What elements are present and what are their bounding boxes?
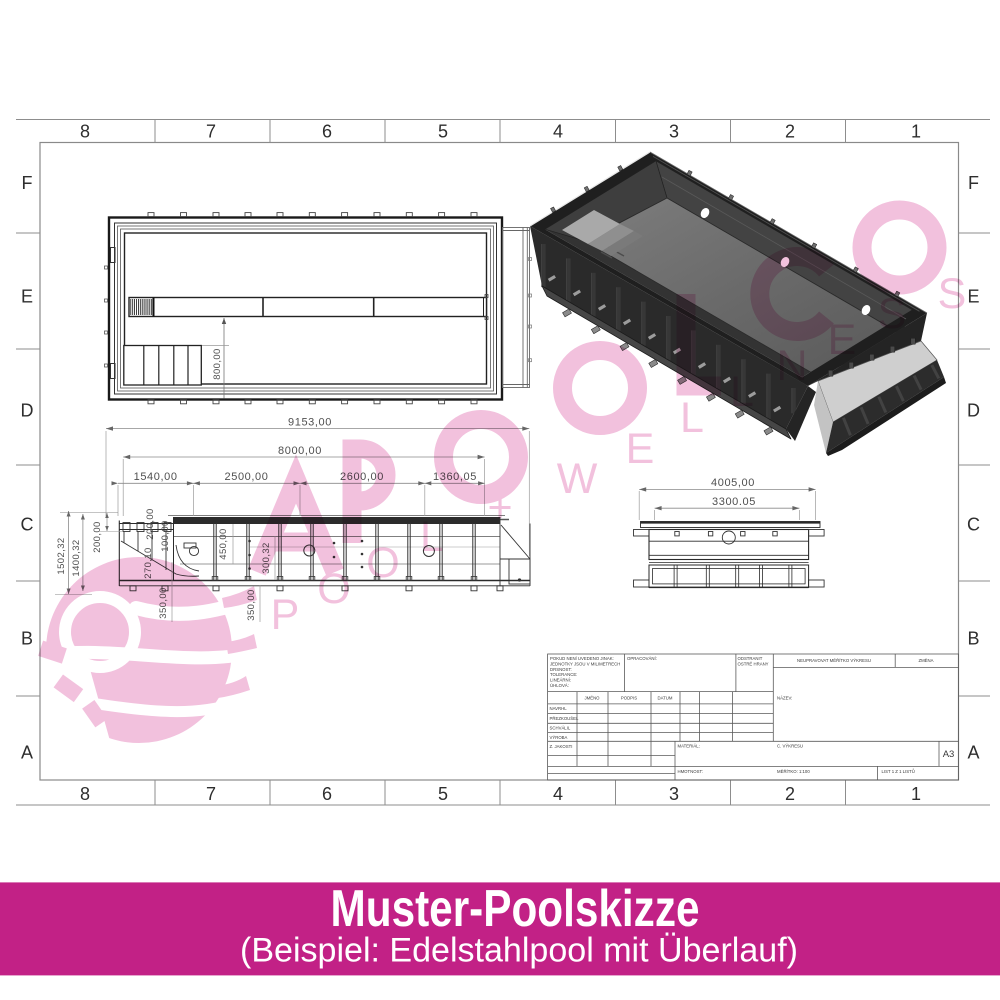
svg-text:7: 7 <box>206 122 216 142</box>
svg-text:PŘEZKOUŠEL: PŘEZKOUŠEL <box>550 716 580 721</box>
svg-text:+: + <box>487 484 512 532</box>
svg-text:C. VÝKRESU: C. VÝKRESU <box>777 744 803 749</box>
svg-text:B: B <box>21 629 33 649</box>
svg-text:SCHVÁLIL: SCHVÁLIL <box>550 726 571 731</box>
svg-text:1: 1 <box>911 784 921 804</box>
svg-text:A3: A3 <box>943 749 955 760</box>
svg-text:1400,32: 1400,32 <box>71 539 82 576</box>
svg-text:E: E <box>21 287 33 307</box>
svg-text:A: A <box>967 743 979 763</box>
svg-text:F: F <box>22 173 33 193</box>
svg-text:ZMĚNA: ZMĚNA <box>918 658 933 663</box>
svg-text:N: N <box>776 342 807 390</box>
svg-text:2: 2 <box>785 784 795 804</box>
svg-text:C: C <box>967 515 980 535</box>
svg-text:ODSTRANIT: ODSTRANIT <box>738 656 763 661</box>
svg-text:S: S <box>938 270 967 318</box>
svg-text:1502,32: 1502,32 <box>56 537 67 574</box>
svg-text:1540,00: 1540,00 <box>134 471 178 483</box>
svg-text:JMÉNO: JMÉNO <box>584 696 600 701</box>
svg-text:E: E <box>626 425 655 473</box>
svg-text:L: L <box>730 368 754 416</box>
svg-text:2: 2 <box>785 122 795 142</box>
svg-text:B: B <box>967 629 979 649</box>
svg-text:7: 7 <box>206 784 216 804</box>
svg-text:A: A <box>21 743 33 763</box>
svg-text:E: E <box>967 287 979 307</box>
svg-text:1: 1 <box>911 122 921 142</box>
svg-text:NÁZEV:: NÁZEV: <box>777 696 792 701</box>
svg-text:W: W <box>557 455 598 503</box>
svg-text:9153,00: 9153,00 <box>288 416 332 428</box>
svg-text:HMOTNOST:: HMOTNOST: <box>678 769 703 774</box>
svg-text:8000,00: 8000,00 <box>278 445 322 457</box>
svg-text:8: 8 <box>80 122 90 142</box>
svg-text:O: O <box>317 565 350 613</box>
svg-text:L: L <box>680 394 704 442</box>
svg-text:450,00: 450,00 <box>218 528 229 559</box>
svg-text:S: S <box>878 290 907 338</box>
svg-text:MĚŘÍTKO: 1:100: MĚŘÍTKO: 1:100 <box>777 769 810 774</box>
svg-text:Z. JAKOSTI: Z. JAKOSTI <box>550 744 573 749</box>
svg-text:D: D <box>21 401 34 421</box>
svg-text:4: 4 <box>553 784 563 804</box>
svg-text:(Beispiel: Edelstahlpool mit Ü: (Beispiel: Edelstahlpool mit Überlauf) <box>240 932 798 970</box>
svg-text:OSTRÉ HRANY: OSTRÉ HRANY <box>738 662 769 667</box>
svg-text:800,00: 800,00 <box>212 348 223 379</box>
svg-text:L: L <box>420 513 444 561</box>
svg-text:4005,00: 4005,00 <box>711 477 755 489</box>
svg-text:3: 3 <box>669 784 679 804</box>
svg-text:POKUD NENÍ UVEDENO JINAK:: POKUD NENÍ UVEDENO JINAK: <box>550 656 614 661</box>
svg-text:LIST 1 Z 1 LISTŮ: LIST 1 Z 1 LISTŮ <box>882 769 915 774</box>
svg-text:F: F <box>968 173 979 193</box>
svg-text:DATUM: DATUM <box>658 696 673 701</box>
svg-text:6: 6 <box>322 122 332 142</box>
svg-text:P: P <box>271 591 300 639</box>
svg-text:200,00: 200,00 <box>145 508 156 539</box>
svg-text:200,00: 200,00 <box>92 521 103 552</box>
svg-text:6: 6 <box>322 784 332 804</box>
svg-text:NAVRHL: NAVRHL <box>550 706 568 711</box>
svg-text:4: 4 <box>553 122 563 142</box>
svg-text:E: E <box>828 316 857 364</box>
svg-text:PODPIS: PODPIS <box>621 696 637 701</box>
svg-text:ÚHLOVÁ:: ÚHLOVÁ: <box>550 683 569 688</box>
svg-text:TOLERANCE:: TOLERANCE: <box>550 672 577 677</box>
svg-text:C: C <box>21 515 34 535</box>
svg-text:OPRACOVÁNÍ:: OPRACOVÁNÍ: <box>627 656 657 661</box>
svg-text:3300.05: 3300.05 <box>712 496 756 508</box>
svg-text:3: 3 <box>669 122 679 142</box>
svg-text:LINEÁRNÍ:: LINEÁRNÍ: <box>550 678 571 683</box>
svg-text:NEUPRAVOVAT MĚŘÍTKO VÝKRESU: NEUPRAVOVAT MĚŘÍTKO VÝKRESU <box>797 658 871 663</box>
svg-text:VÝROBA: VÝROBA <box>550 735 568 740</box>
svg-text:D: D <box>967 401 980 421</box>
svg-text:5: 5 <box>438 122 448 142</box>
svg-text:Muster-Poolskizze: Muster-Poolskizze <box>331 879 700 937</box>
svg-text:JEDNOTKY JSOU V MILIMETRECH: JEDNOTKY JSOU V MILIMETRECH <box>550 661 620 666</box>
svg-text:100,00: 100,00 <box>160 520 171 551</box>
svg-text:5: 5 <box>438 784 448 804</box>
svg-text:DRSNOST:: DRSNOST: <box>550 667 572 672</box>
svg-text:O: O <box>366 539 399 587</box>
svg-text:8: 8 <box>80 784 90 804</box>
svg-text:MATERIÁL:: MATERIÁL: <box>678 744 700 749</box>
svg-text:2500,00: 2500,00 <box>225 471 269 483</box>
